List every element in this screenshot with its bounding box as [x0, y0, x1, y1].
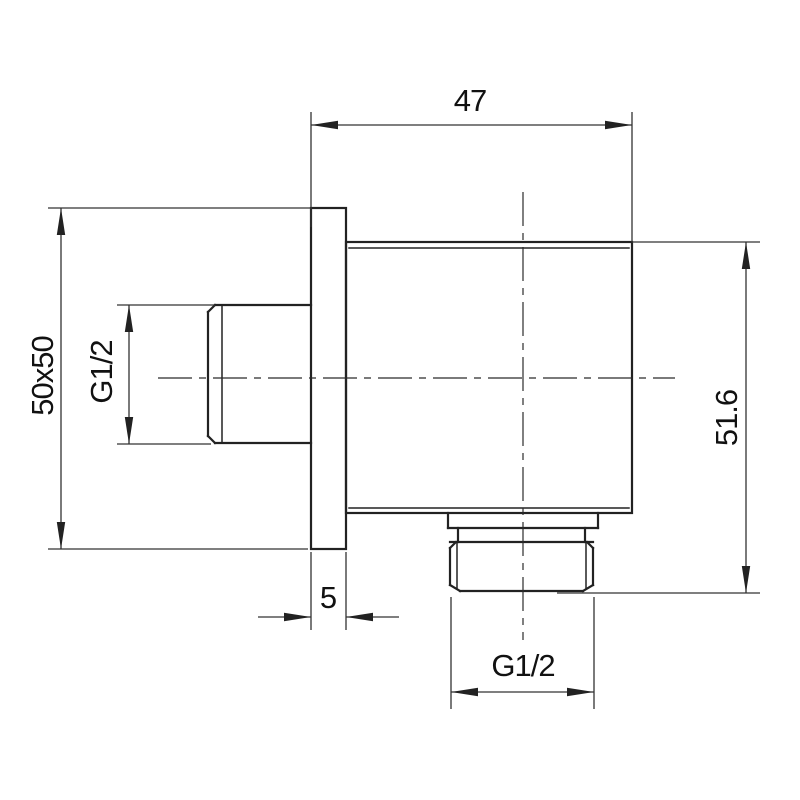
technical-drawing-page: 47 50x50 G1/2 5	[0, 0, 800, 800]
arrowhead-right-icon	[567, 688, 594, 696]
technical-drawing-canvas: 47 50x50 G1/2 5	[0, 0, 800, 800]
dim-outlet-thread: G1/2	[451, 597, 594, 709]
dim-plate-thickness-label: 5	[320, 580, 336, 615]
dim-top-width-label: 47	[454, 83, 486, 118]
arrowhead-left-icon	[451, 688, 478, 696]
dim-outlet-thread-label: G1/2	[491, 648, 554, 683]
arrowhead-down-icon	[742, 566, 750, 593]
dim-plate-size-label: 50x50	[25, 336, 60, 416]
inlet-thread-outline	[208, 305, 311, 443]
outlet-thread-outline	[450, 542, 593, 591]
dim-side-height-label: 51.6	[709, 390, 744, 446]
arrowhead-up-icon	[742, 242, 750, 269]
arrowhead-right-icon	[284, 613, 311, 621]
arrowhead-up-icon	[57, 208, 65, 235]
dim-side-height: 51.6	[557, 242, 760, 593]
arrowhead-down-icon	[57, 522, 65, 549]
arrowhead-down-icon	[125, 417, 133, 444]
dim-top-width: 47	[311, 83, 632, 242]
arrowhead-up-icon	[125, 305, 133, 332]
arrowhead-right-icon	[605, 121, 632, 129]
dim-plate-thickness: 5	[258, 552, 399, 630]
arrowhead-left-icon	[346, 613, 373, 621]
arrowhead-left-icon	[311, 121, 338, 129]
dim-inlet-thread: G1/2	[84, 305, 215, 444]
dim-inlet-thread-label: G1/2	[84, 340, 119, 403]
